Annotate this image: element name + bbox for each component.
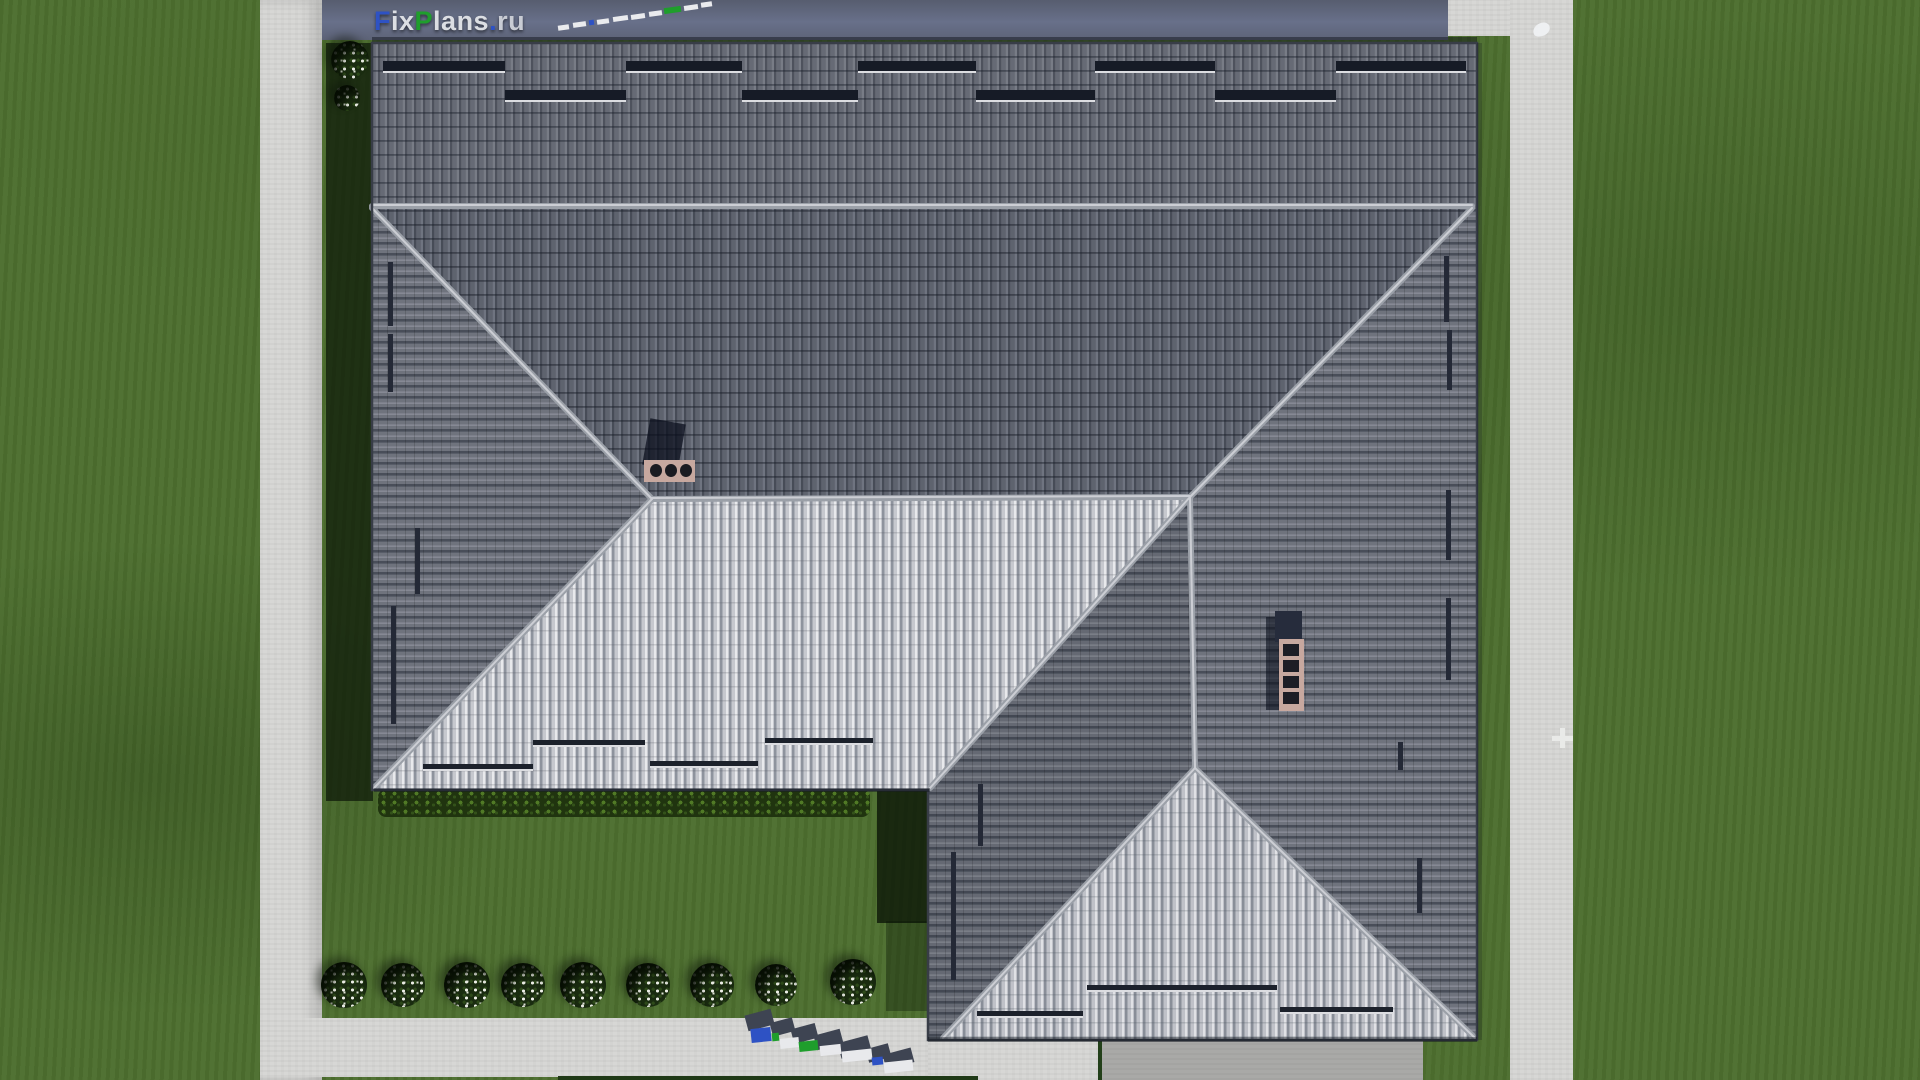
chimney-flue <box>680 464 692 477</box>
shadow-west-eave <box>326 43 373 801</box>
bottom-watermark-letter <box>799 1040 819 1052</box>
chimney-flue <box>1283 692 1299 704</box>
snow-guard-bar-v <box>1444 256 1449 322</box>
flower-bush <box>690 963 734 1007</box>
logo-letter: . <box>489 6 497 36</box>
fixplans-logo: FixPlans.ru <box>374 6 525 37</box>
snow-guard-bar <box>1280 1007 1393 1014</box>
snow-guard-bar <box>1087 985 1277 992</box>
foundation-shrub-row <box>378 789 870 817</box>
flower-bush <box>444 962 490 1008</box>
snow-guard-bar <box>1336 61 1466 73</box>
shadow-tree-edge <box>1880 26 1920 168</box>
flower-bush <box>381 963 425 1007</box>
flower-bush <box>331 41 369 79</box>
shadow-wing-west-soft <box>886 921 929 1011</box>
bottom-watermark-letter <box>750 1027 771 1043</box>
snow-guard-bar <box>742 90 858 102</box>
bottom-watermark-letter <box>772 1033 780 1042</box>
snow-guard-bar-v <box>415 528 420 594</box>
driveway <box>1100 1036 1423 1080</box>
snow-guard-bar <box>650 761 758 768</box>
chimney-flue <box>665 464 677 477</box>
snow-guard-bar <box>423 764 533 771</box>
flower-bush <box>830 959 876 1005</box>
snow-guard-bar <box>1095 61 1215 73</box>
bottom-watermark-letter <box>872 1056 884 1065</box>
snow-guard-bar-v <box>1417 858 1422 913</box>
shadow-top-eave <box>372 37 1477 44</box>
snow-guard-bar-v <box>388 334 393 392</box>
snow-guard-bar <box>976 90 1095 102</box>
snow-guard-bar-v <box>391 606 396 724</box>
snow-guard-bar <box>383 61 505 73</box>
shadow-east-eave <box>1477 43 1482 1040</box>
sidewalk-under-wing <box>928 1036 1100 1080</box>
logo-letter: P <box>415 6 434 36</box>
shadow-wing-west-wall <box>877 791 929 923</box>
snow-guard-bar-v <box>1398 742 1403 770</box>
flower-bush <box>755 964 797 1006</box>
snow-guard-bar-v <box>1446 490 1451 560</box>
snow-guard-bar <box>626 61 742 73</box>
snow-guard-bar <box>505 90 626 102</box>
snow-guard-bar <box>533 740 645 747</box>
flower-bush <box>501 963 545 1007</box>
aerial-house-roof-render: FixPlans.ru <box>0 0 1920 1080</box>
logo-letter: ix <box>391 6 415 36</box>
shadow-wing-south-eave <box>928 1037 1477 1042</box>
chimney-flue <box>1283 660 1299 672</box>
snow-guard-bar-v <box>978 784 983 846</box>
flower-bush <box>560 962 606 1008</box>
chimney-cap <box>1275 611 1302 642</box>
shadow-light-roof-eave <box>374 788 930 792</box>
bottom-watermark-letter <box>780 1037 800 1049</box>
chimney-flue <box>650 464 662 477</box>
lawn-edge-line <box>558 1076 978 1080</box>
snow-guard-bar <box>765 738 873 745</box>
flower-bush <box>334 85 360 111</box>
sidewalk-left <box>260 0 322 1080</box>
snow-guard-bar <box>1215 90 1336 102</box>
flower-bush <box>626 963 670 1007</box>
chimney-flue <box>1283 676 1299 688</box>
logo-letter: ru <box>497 6 525 36</box>
snow-guard-bar-v <box>388 262 393 326</box>
driveway-edge-line <box>1098 1039 1102 1080</box>
path-mark <box>1560 728 1565 748</box>
snow-guard-bar <box>858 61 976 73</box>
logo-letter: lans <box>433 6 489 36</box>
snow-guard-bar-v <box>1447 330 1452 390</box>
road-watermark-dash <box>589 20 595 26</box>
chimney-flue <box>1283 644 1299 656</box>
snow-guard-bar <box>977 1011 1083 1018</box>
logo-letter: F <box>374 6 391 36</box>
snow-guard-bar-v <box>951 852 956 980</box>
snow-guard-bar-v <box>1446 598 1451 680</box>
sidewalk-right <box>1510 0 1573 1080</box>
flower-bush <box>321 962 367 1008</box>
